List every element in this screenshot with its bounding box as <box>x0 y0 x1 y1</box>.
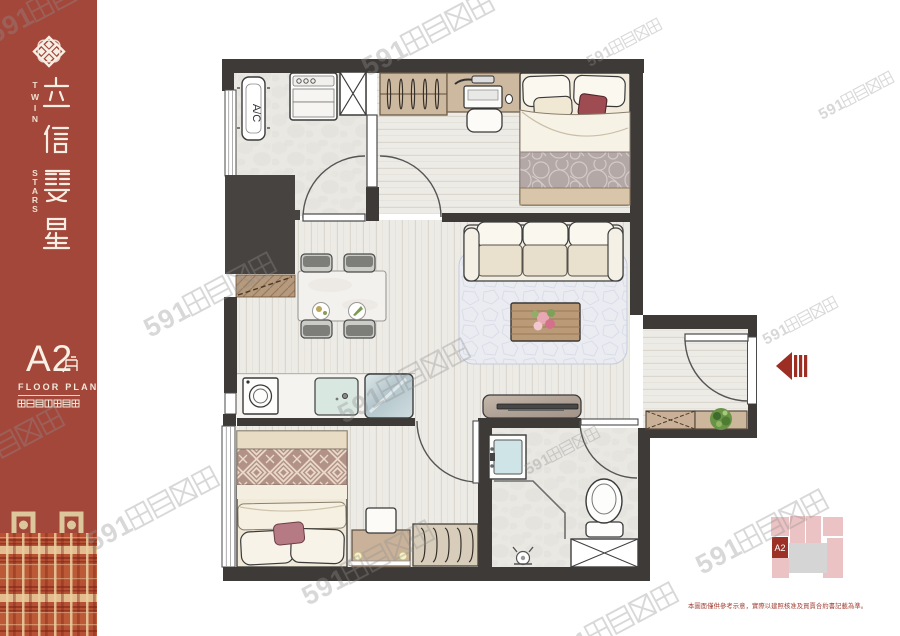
svg-text:A2: A2 <box>774 543 785 553</box>
svg-text:FLOOR PLAN: FLOOR PLAN <box>18 382 99 392</box>
svg-text:A/C: A/C <box>250 104 262 122</box>
svg-text:A2: A2 <box>26 338 73 379</box>
svg-text:T: T <box>32 80 38 90</box>
svg-text:W: W <box>31 92 40 102</box>
svg-text:本圖面僅供參考示意，實際以建照核准及買賣合約書記載為準。: 本圖面僅供參考示意，實際以建照核准及買賣合約書記載為準。 <box>688 601 867 610</box>
svg-text:S: S <box>32 204 38 214</box>
svg-text:N: N <box>32 114 38 124</box>
svg-text:I: I <box>34 103 36 113</box>
